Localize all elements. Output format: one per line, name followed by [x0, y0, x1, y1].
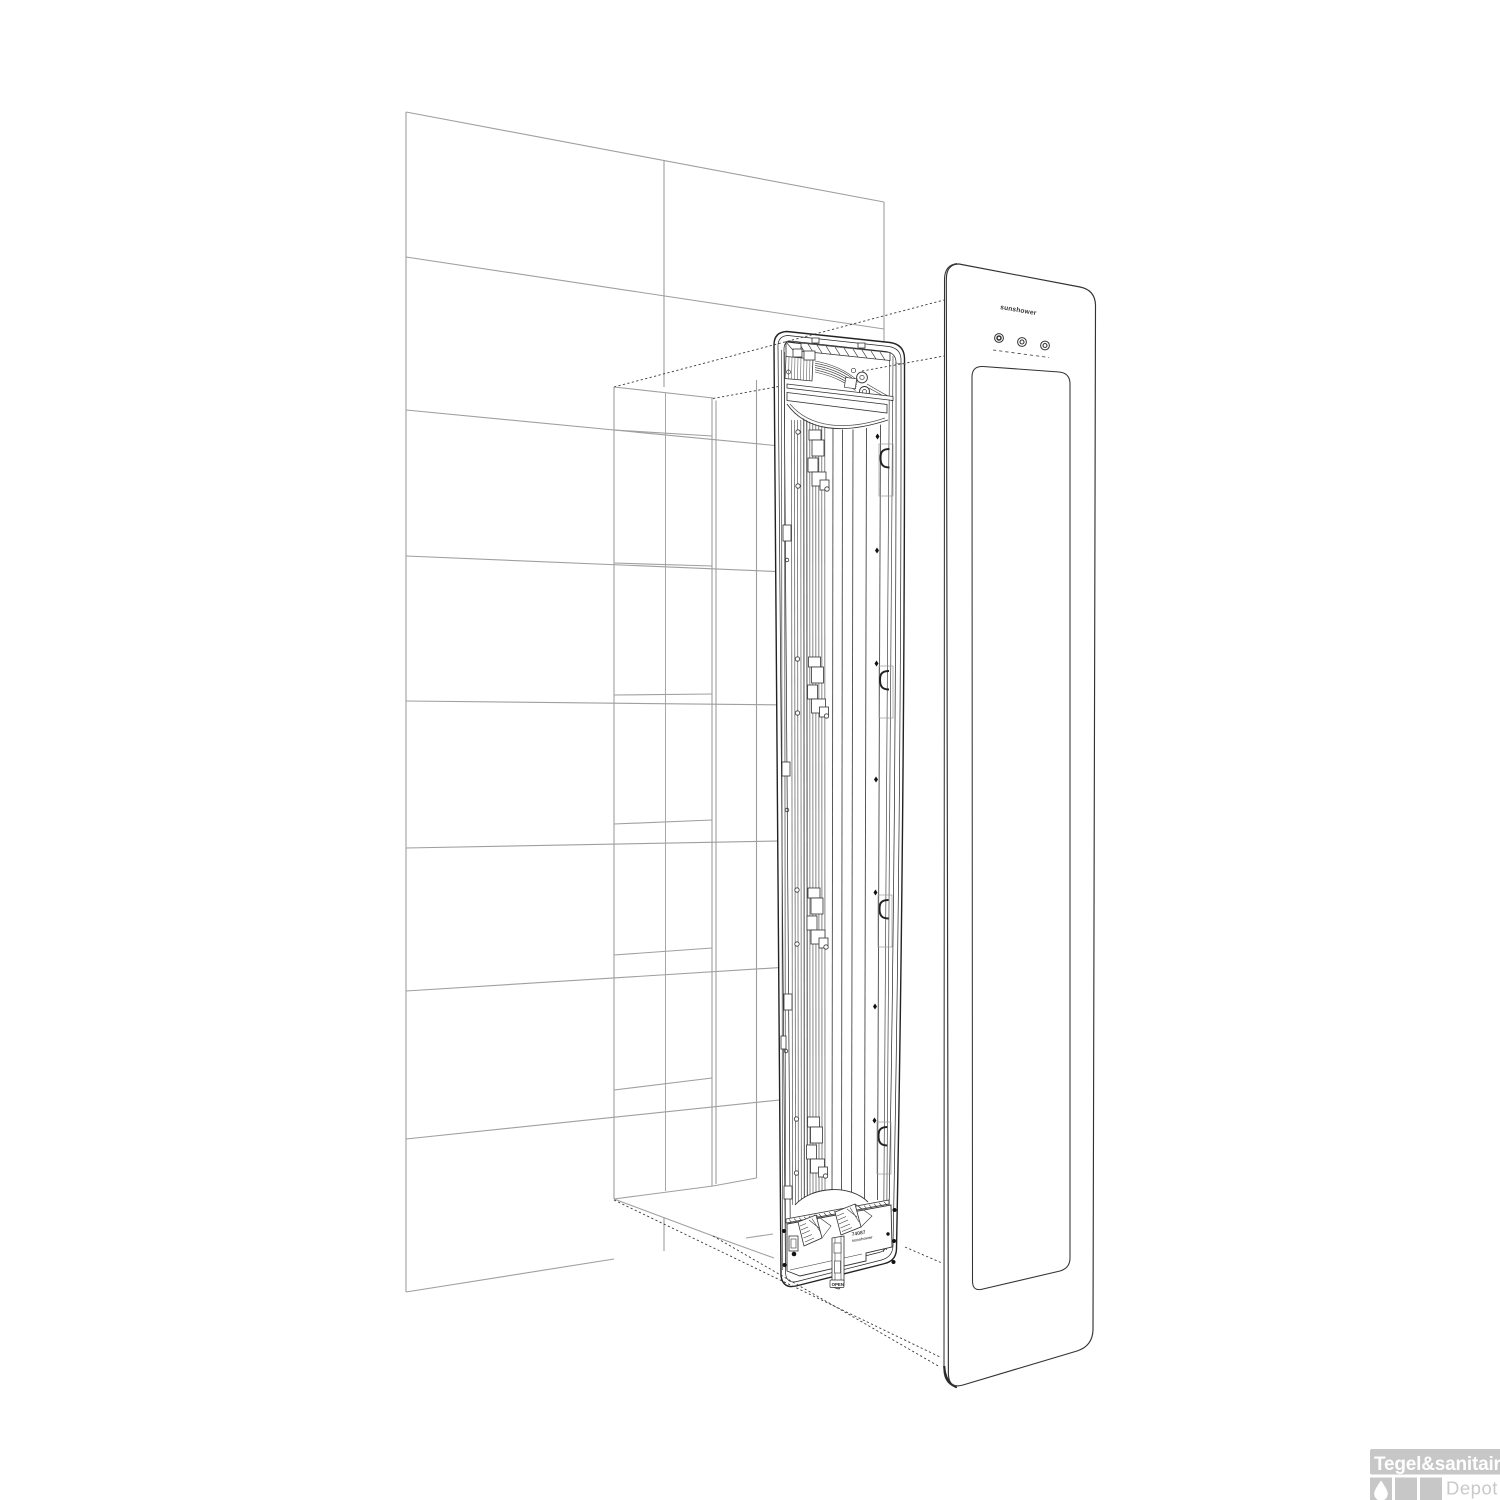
svg-text:Tegel&sanitair: Tegel&sanitair	[1374, 1454, 1500, 1475]
svg-text:Depot: Depot	[1446, 1478, 1498, 1499]
svg-text:OPEN: OPEN	[832, 1282, 844, 1287]
